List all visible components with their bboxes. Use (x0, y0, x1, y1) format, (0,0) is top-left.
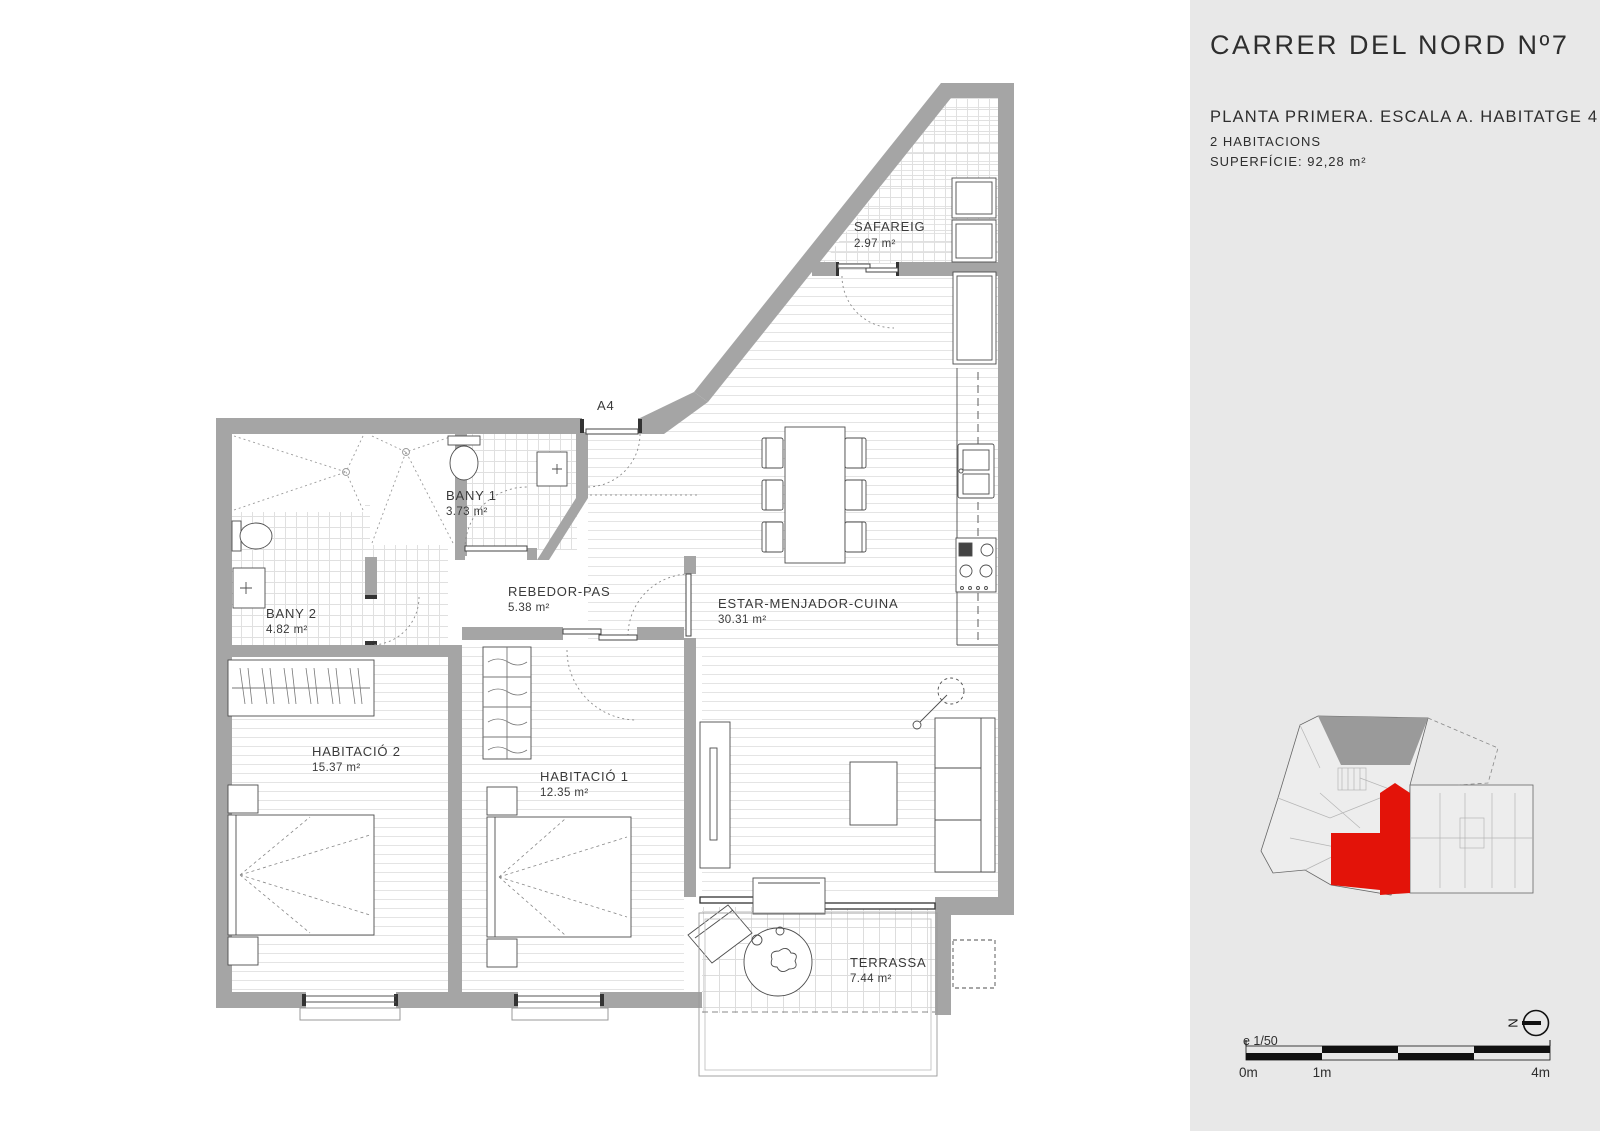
svg-text:3.73 m²: 3.73 m² (446, 506, 488, 518)
svg-text:5.38 m²: 5.38 m² (508, 602, 550, 614)
svg-text:BANY 1: BANY 1 (446, 488, 497, 503)
info-panel: CARRER DEL NORD Nº7 PLANTA PRIMERA. ESCA… (1190, 0, 1600, 1131)
surface-line: SUPERFÍCIE: 92,28 m² (1210, 154, 1367, 169)
svg-text:15.37 m²: 15.37 m² (312, 762, 361, 774)
svg-text:ESTAR-MENJADOR-CUINA: ESTAR-MENJADOR-CUINA (718, 596, 898, 611)
key-plan-neighbor-outline (1428, 718, 1498, 785)
entry-label: A4 (597, 398, 615, 413)
key-plan-right-block (1410, 785, 1533, 893)
scale-tick-1m: 1m (1313, 1065, 1332, 1080)
floorplan-sheet: A4 SAFAREIG 2.97 m² BANY 1 3.73 m² BANY … (0, 0, 1600, 1131)
north-label: N (1505, 1018, 1520, 1027)
floorplan-drawing: A4 SAFAREIG 2.97 m² BANY 1 3.73 m² BANY … (0, 0, 1190, 1131)
svg-text:HABITACIÓ 2: HABITACIÓ 2 (312, 744, 401, 759)
scale-tick-4m: 4m (1531, 1065, 1550, 1080)
key-plan (1260, 698, 1552, 903)
svg-text:4.82 m²: 4.82 m² (266, 624, 308, 636)
dining-set (762, 427, 866, 563)
svg-text:30.31 m²: 30.31 m² (718, 614, 767, 626)
svg-text:REBEDOR-PAS: REBEDOR-PAS (508, 584, 610, 599)
scale-bar: 0m 1m 4m (1238, 1032, 1568, 1082)
svg-text:HABITACIÓ 1: HABITACIÓ 1 (540, 769, 629, 784)
svg-text:TERRASSA: TERRASSA (850, 955, 926, 970)
svg-text:2.97 m²: 2.97 m² (854, 238, 896, 250)
sheet-subtitle: PLANTA PRIMERA. ESCALA A. HABITATGE 4 (1210, 108, 1598, 127)
svg-text:SAFAREIG: SAFAREIG (854, 219, 925, 234)
svg-text:7.44 m²: 7.44 m² (850, 973, 892, 985)
sheet-title: CARRER DEL NORD Nº7 (1210, 30, 1569, 61)
scale-bar-segments (1246, 1040, 1550, 1060)
svg-text:BANY 2: BANY 2 (266, 606, 317, 621)
rooms-count-line: 2 HABITACIONS (1210, 134, 1321, 149)
svg-text:12.35 m²: 12.35 m² (540, 787, 589, 799)
scale-tick-0m: 0m (1239, 1065, 1258, 1080)
floorplan-svg: A4 SAFAREIG 2.97 m² BANY 1 3.73 m² BANY … (0, 0, 1190, 1131)
